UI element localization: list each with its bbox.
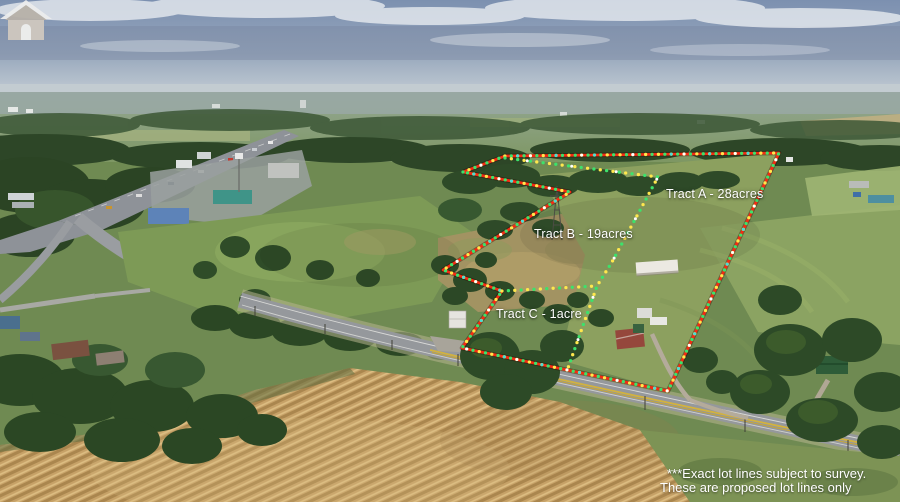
lot-lines-overlay: [0, 0, 900, 502]
tract-c-divider-dots-yellow: [502, 286, 597, 291]
house-logo-icon: [0, 0, 52, 40]
tract-divider-ab-dots-green: [505, 158, 658, 368]
tract-divider-ab-dots-yellow: [505, 158, 658, 368]
aerial-photo: Tract A - 28acres Tract B - 19acres Trac…: [0, 0, 900, 502]
perimeter-red-line: [443, 153, 779, 391]
tract-divider-ab-dots-white: [505, 158, 658, 368]
